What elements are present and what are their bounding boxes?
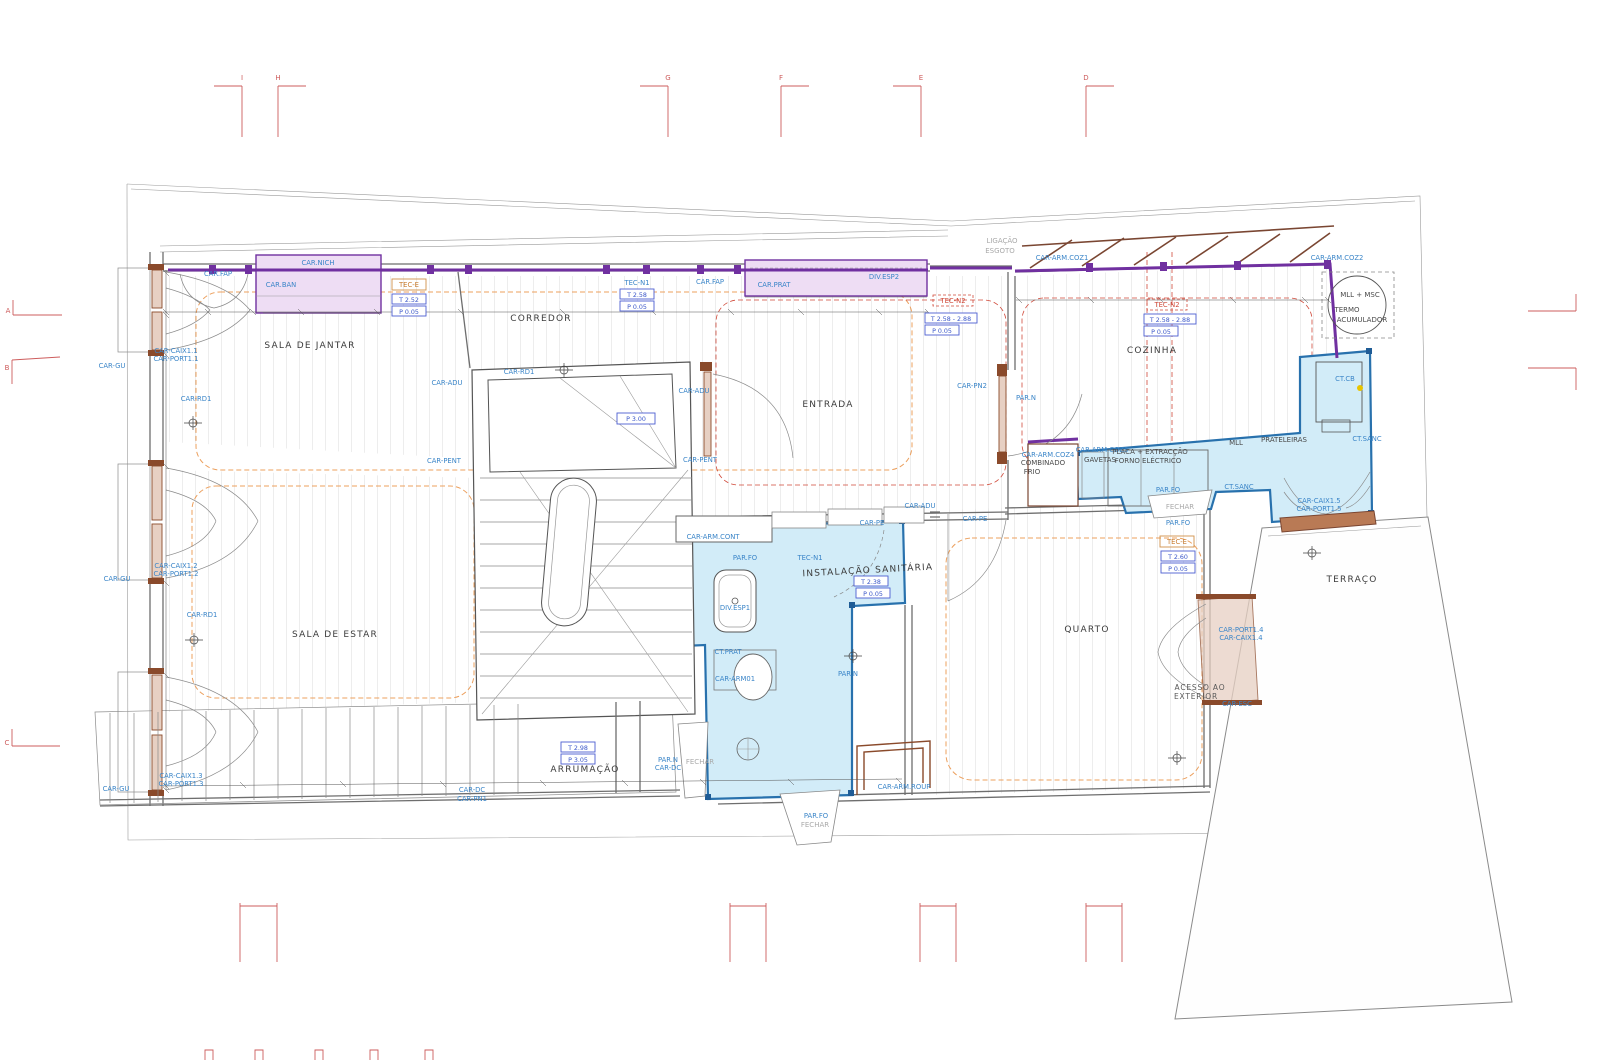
tag-acumulador: ACUMULADOR [1337,316,1388,324]
tag-car-gu: CAR-GU [104,575,131,583]
tag-frio: FRIO [1024,468,1041,476]
tag-tec-n1: TEC-N1 [796,554,822,562]
tag-ct-sanc: CT.SANC [1224,483,1253,491]
tag-par-fo: PAR.FO [1166,519,1190,527]
tag-car-adu: CAR-ADU [678,387,709,395]
floor-level: P 0.05 [932,328,952,335]
tag-car-fap: CAR.FAP [204,270,232,278]
tag-car-fap: CAR.FAP [696,278,724,286]
ceiling-height: T 2.38 [860,579,881,586]
room-label-quarto: QUARTO [1064,625,1109,635]
grid-letter-e: E [919,74,923,82]
grid-letter-h: H [275,74,280,82]
tag-div-esp2: DIV.ESP2 [869,273,899,281]
tag-car-pn2: CAR-PN2 [957,382,987,390]
tag-mll-msc: MLL + MSC [1340,291,1380,299]
tag-car-port1-2: CAR-PORT1.2 [154,570,199,578]
tag-car-caix1-2: CAR-CAIX1.2 [154,562,197,570]
floor-level: P 0.05 [627,304,647,311]
tec-e-tag: TEC-E [398,281,419,289]
room-label-sala-de-estar: SALA DE ESTAR [292,630,378,640]
tag-car-arm-cont: CAR-ARM.CONT [687,533,741,541]
tag-forno-electrico: FORNO ELÉCTRICO [1115,456,1182,465]
tag-fechar: FECHAR [686,758,714,766]
room-label-cozinha: COZINHA [1127,346,1177,356]
tag-car-arm-coz2: CAR-ARM.COZ2 [1311,254,1364,262]
ceiling-height: T 2.58 [626,292,647,299]
room-label-entrada: ENTRADA [802,400,853,410]
tag-car-rd1: CAR-RD1 [504,368,535,376]
tag-combinado: COMBINADO [1021,459,1066,467]
tec-e-tag: TEC-E [1166,538,1187,546]
tag-par-n: PAR.N [658,756,678,764]
tag-div-esp1: DIV.ESP1 [720,604,750,612]
tag-car-port1-4: CAR-PORT1.4 [1219,626,1264,634]
ceiling-height: T 2.58 - 2.88 [930,316,971,323]
tag-par-n: PAR.N [1016,394,1036,402]
tag-ct-prat: CT.PRAT [714,648,742,656]
tag-car-pent: CAR-PENT [427,457,462,465]
tag-fechar: FECHAR [1166,503,1194,511]
tec-n2-tag: TEC-N2 [939,297,965,305]
room-label-terraco: TERRAÇO [1325,575,1377,585]
ceiling-height: T 2.60 [1167,554,1188,561]
tag-car-port1-3: CAR-PORT1.3 [159,780,204,788]
tag-par-fo: PAR.FO [733,554,757,562]
grid-letter-i: I [241,74,243,82]
terrace-area [1175,517,1512,1019]
tag-esgoto: ESGOTO [985,247,1015,255]
tag-termo: TERMO [1333,306,1360,314]
tag-car-pe: CAR-PE [963,515,988,523]
tag-par-fo: PAR.FO [804,812,828,820]
tag-car-esc: CAR-ESC [1222,700,1252,708]
tag-car-adu: CAR-ADU [431,379,462,387]
tag-car-port1-5: CAR-PORT1.5 [1297,505,1342,513]
tag-car-caix1-3: CAR-CAIX1.3 [159,772,202,780]
tag-par-fo: PAR.FO [1156,486,1180,494]
grid-letter-c: C [5,739,10,747]
tag-car-dc: CAR-DC [655,764,682,772]
floor-plan-drawing: I H G F E D A B C TEC-E T 2.52 P 0.05 TE… [0,0,1600,1063]
tag-car-caix1-1: CAR-CAIX1.1 [154,347,197,355]
floor-level: P 3.05 [568,757,588,764]
room-label-corredor: CORREDOR [510,314,571,324]
room-label-sala-de-jantar: SALA DE JANTAR [264,341,355,351]
tag-car-pe: CAR-PE [860,519,885,527]
tag-car-dc: CAR-DC [459,786,486,794]
floor-level: P 0.05 [399,309,419,316]
tag-car-prat: CAR.PRAT [758,281,792,289]
floor-plan-canvas: I H G F E D A B C TEC-E T 2.52 P 0.05 TE… [0,0,1600,1063]
tag-ligacao: LIGAÇÃO [986,236,1018,245]
tag-car-caix1-4: CAR-CAIX1.4 [1219,634,1262,642]
tag-car-ban: CAR.BAN [266,281,296,289]
stair-void-level: P 3.00 [626,416,646,423]
tag-ct-cb: CT.CB [1335,375,1355,383]
grid-letter-d: D [1083,74,1088,82]
room-label-acesso-exterior: ACESSO AO [1175,683,1226,692]
car-prat-cabinet [745,260,927,296]
grid-letter-a: A [6,307,11,315]
ceiling-height: T 2.98 [567,745,588,752]
tag-gavetas: GAVETAS [1084,456,1116,464]
tag-car-nich: CAR.NICH [302,259,335,267]
tag-car-arm-coz1: CAR-ARM.COZ1 [1036,254,1089,262]
tag-car-pent: CAR-PENT [683,456,718,464]
tag-prateleiras: PRATELEIRAS [1261,436,1308,444]
tag-car-port1-1: CAR-PORT1.1 [154,355,199,363]
room-label-acesso-exterior: EXTERIOR [1174,692,1218,701]
grid-letter-b: B [5,364,10,372]
tag-ct-sanc: CT.SANC [1352,435,1381,443]
grid-letter-g: G [665,74,670,82]
tec-n2-tag: TEC-N2 [1153,301,1179,309]
tag-car-rd1: CAR-RD1 [181,395,212,403]
ceiling-height: T 2.52 [398,297,419,304]
floor-level: P 0.05 [1151,329,1171,336]
tag-par-n: PAR.N [838,670,858,678]
tag-car-gu: CAR-GU [103,785,130,793]
floor-level: P 0.05 [1168,566,1188,573]
tag-car-rd1: CAR-RD1 [187,611,218,619]
tag-car-arm-coz4: CAR-ARM.COZ4 [1022,451,1075,459]
bathroom-area [683,521,905,799]
tag-car-caix1-5: CAR-CAIX1.5 [1297,497,1340,505]
tag-car-gu: CAR-GU [99,362,126,370]
tag-car-arm-roup: CAR-ARM.ROUP [878,783,931,791]
ceiling-height: T 2.58 - 2.88 [1149,317,1190,324]
tag-placa-extraccao: PLACA + EXTRACÇÃO [1112,447,1188,456]
grid-letter-f: F [779,74,783,82]
tag-car-adu: CAR-ADU [904,502,935,510]
floor-level: P 0.05 [863,591,883,598]
tag-car-pn1: CAR-PN1 [457,795,487,803]
tec-n1-tag: TEC-N1 [623,279,649,287]
stairs [472,362,695,720]
tag-mll: MLL [1229,439,1243,447]
room-label-arrumacao: ARRUMAÇÃO [550,764,619,775]
tag-fechar: FECHAR [801,821,829,829]
tag-car-arm01: CAR-ARM01 [715,675,755,683]
